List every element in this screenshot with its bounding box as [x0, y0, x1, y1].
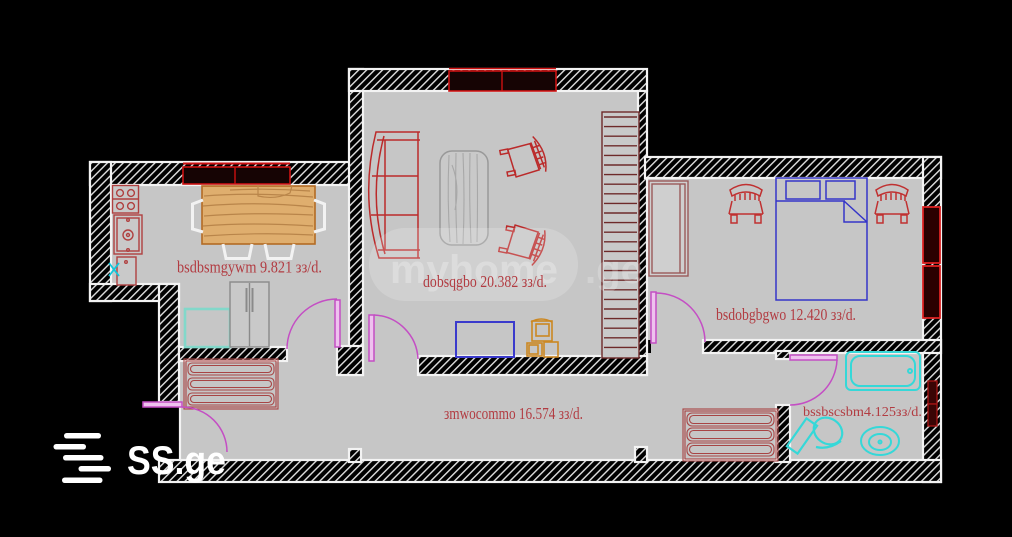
svg-text:bsdobgbgwo 12.420 зз/d.: bsdobgbgwo 12.420 зз/d.: [716, 305, 856, 324]
svg-text:.ge: .ge: [585, 248, 643, 292]
svg-text:SS.ge: SS.ge: [127, 439, 226, 483]
svg-text:dobsqgbo 20.382 зз/d.: dobsqgbo 20.382 зз/d.: [423, 272, 547, 291]
svg-text:bsdbsmgywm 9.821 зз/d.: bsdbsmgywm 9.821 зз/d.: [177, 258, 322, 277]
svg-text:bssbscsbm4.125зз/d.: bssbscsbm4.125зз/d.: [803, 405, 922, 420]
svg-text:зmwocommo 16.574 зз/d.: зmwocommo 16.574 зз/d.: [444, 404, 583, 423]
